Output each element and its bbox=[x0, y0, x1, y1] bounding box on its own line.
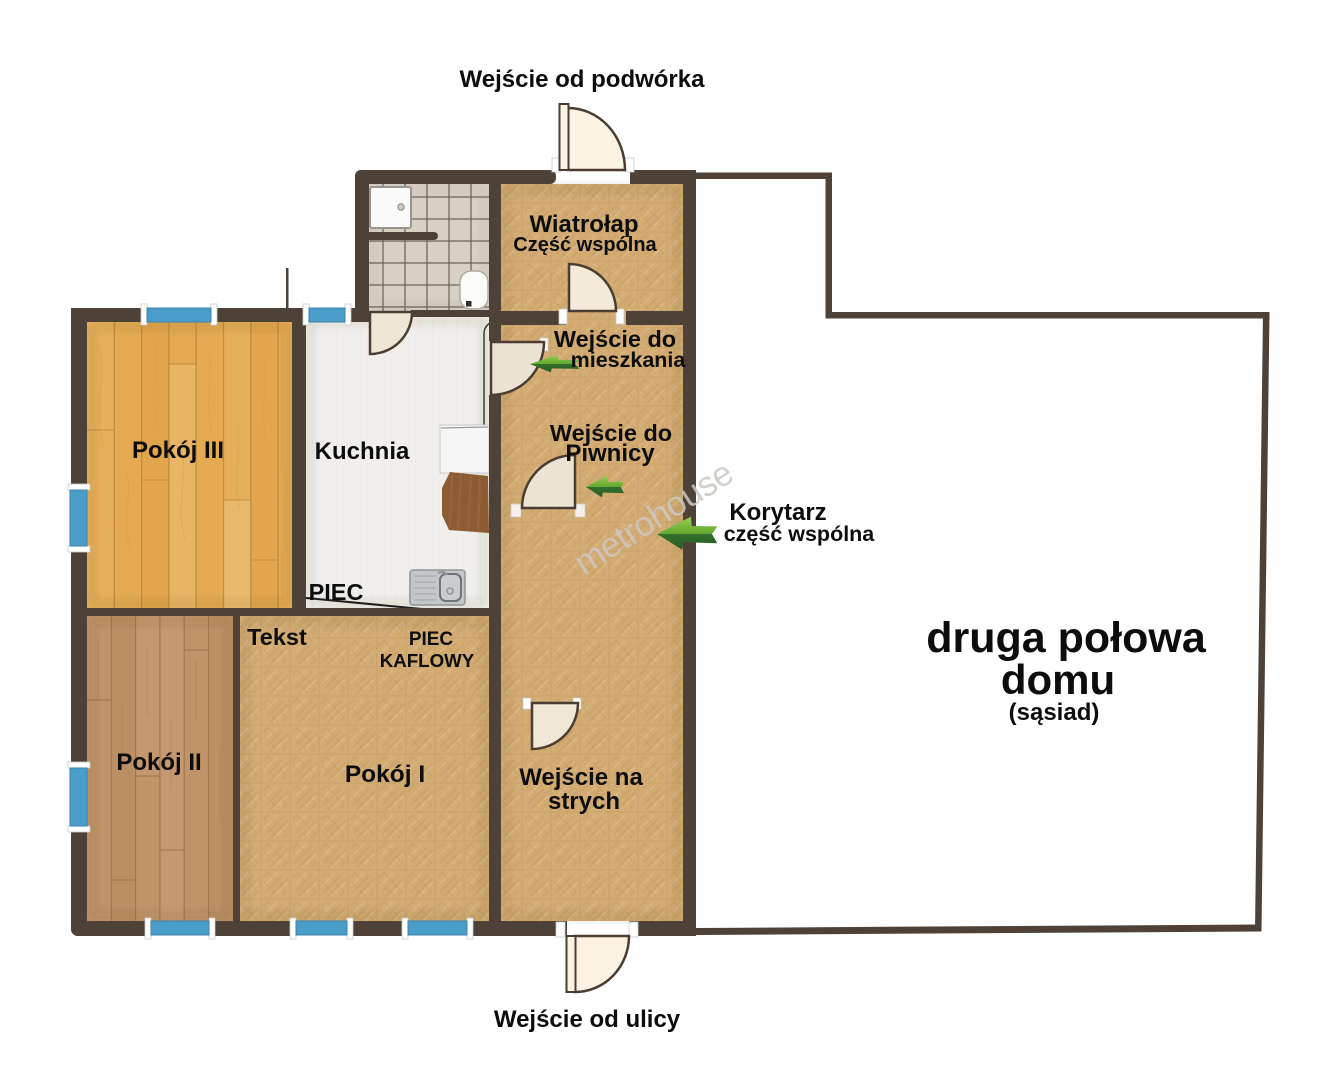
svg-text:mieszkania: mieszkania bbox=[571, 348, 687, 372]
svg-text:Piwnicy: Piwnicy bbox=[565, 440, 655, 467]
svg-text:strych: strych bbox=[548, 788, 620, 815]
svg-text:KAFLOWY: KAFLOWY bbox=[380, 650, 475, 671]
svg-text:Część wspólna: Część wspólna bbox=[513, 234, 657, 256]
svg-text:domu: domu bbox=[1001, 656, 1115, 703]
svg-text:(sąsiad): (sąsiad) bbox=[1009, 699, 1100, 726]
svg-text:Tekst: Tekst bbox=[247, 624, 307, 650]
svg-text:Pokój II: Pokój II bbox=[116, 749, 201, 776]
svg-text:Kuchnia: Kuchnia bbox=[315, 438, 410, 465]
svg-text:druga połowa: druga połowa bbox=[926, 614, 1207, 662]
svg-text:PIEC: PIEC bbox=[409, 629, 454, 650]
svg-text:Wejście od ulicy: Wejście od ulicy bbox=[494, 1006, 681, 1033]
svg-text:Wejście od podwórka: Wejście od podwórka bbox=[460, 66, 706, 93]
svg-text:Wejście na: Wejście na bbox=[519, 764, 643, 791]
svg-text:Pokój I: Pokój I bbox=[345, 761, 425, 788]
svg-text:część wspólna: część wspólna bbox=[724, 522, 876, 546]
svg-text:Pokój III: Pokój III bbox=[132, 437, 224, 464]
svg-text:PIEC: PIEC bbox=[309, 579, 364, 605]
